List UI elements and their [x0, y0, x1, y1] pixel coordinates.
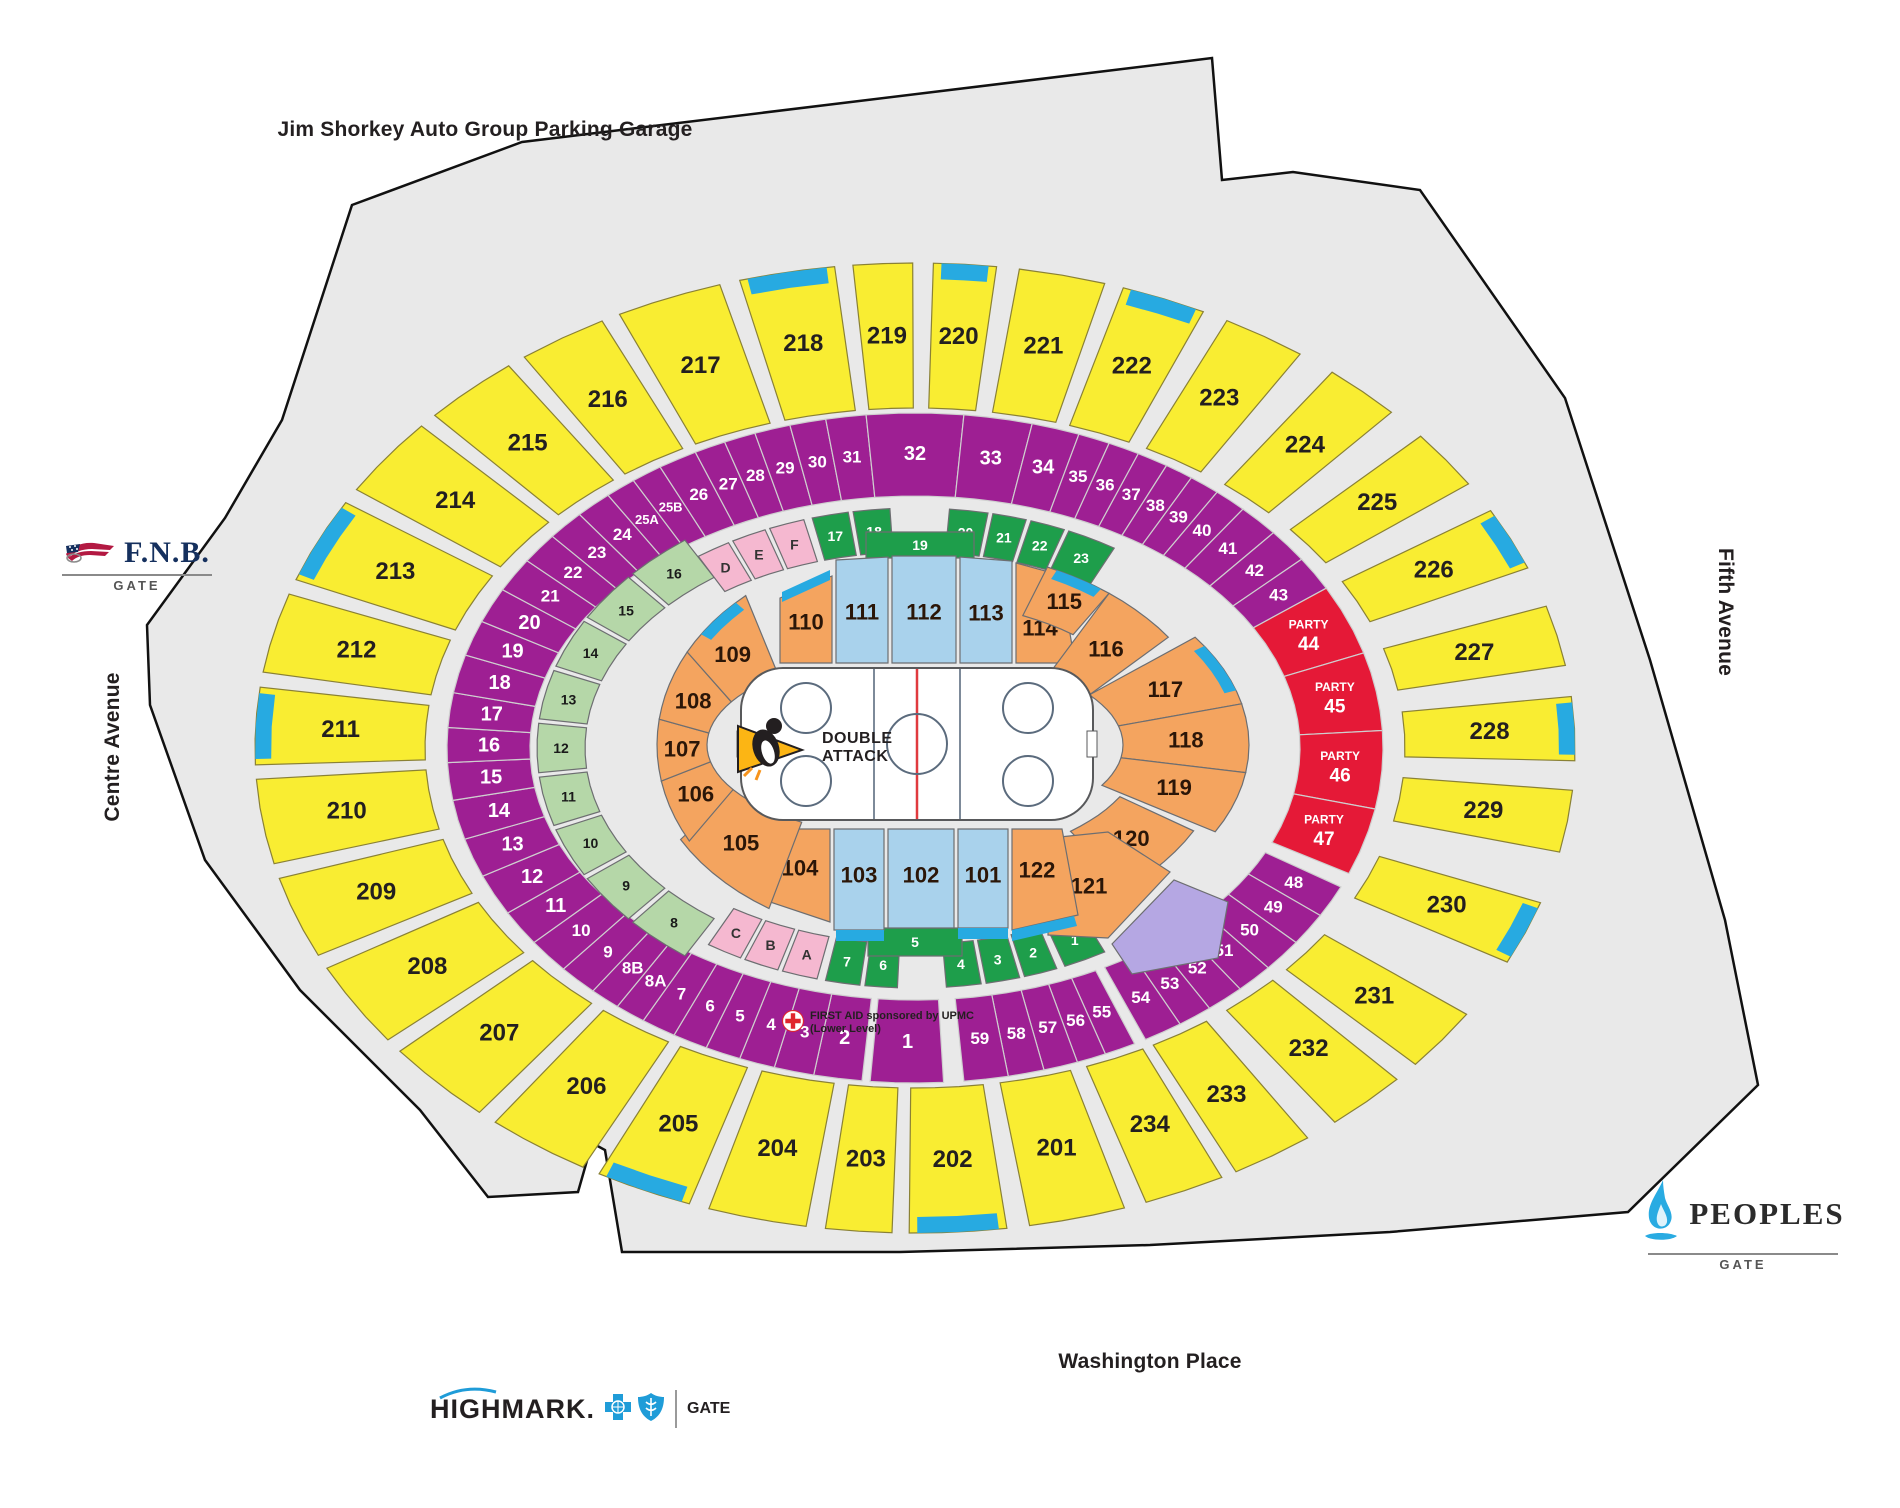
- fnb-rule: [62, 574, 212, 576]
- rink-promo-text: DOUBLE ATTACK: [822, 730, 893, 766]
- section-110-label: 110: [788, 610, 824, 635]
- section-42-label: 42: [1245, 561, 1264, 580]
- section-20-label: 20: [518, 612, 540, 634]
- bluecross-icon: [603, 1392, 633, 1427]
- section-party-44-word-label: PARTY: [1289, 617, 1329, 631]
- section-31-label: 31: [843, 448, 862, 467]
- section-party-46-word-label: PARTY: [1320, 749, 1360, 763]
- section-premium-bottom-4-label: 4: [957, 956, 965, 972]
- section-30-label: 30: [808, 452, 827, 471]
- highmark-swoosh-icon: [438, 1382, 498, 1402]
- section-118-label: 118: [1168, 727, 1204, 752]
- section-23-label: 23: [587, 543, 606, 562]
- parking-garage-label: Jim Shorkey Auto Group Parking Garage: [250, 118, 720, 142]
- section-224-label: 224: [1285, 431, 1326, 458]
- section-29-label: 29: [776, 458, 795, 477]
- section-terrace-9-label: 9: [622, 878, 630, 894]
- section-121-label: 121: [1071, 874, 1108, 899]
- section-28-label: 28: [746, 466, 765, 485]
- section-38-label: 38: [1146, 496, 1165, 515]
- section-6-label: 6: [705, 996, 714, 1015]
- goal-right: [1087, 731, 1097, 757]
- section-53-label: 53: [1160, 974, 1179, 993]
- section-7-label: 7: [677, 984, 686, 1003]
- section-terrace-16-label: 16: [666, 566, 682, 582]
- section-terrace-12-label: 12: [553, 740, 569, 756]
- section-226-label: 226: [1414, 557, 1454, 584]
- penguins-logo-head: [766, 718, 782, 734]
- section-26-label: 26: [689, 485, 708, 504]
- section-49-label: 49: [1264, 898, 1283, 917]
- section-18-label: 18: [488, 672, 510, 694]
- section-25A-label: 25A: [635, 512, 659, 527]
- section-party-47-word-label: PARTY: [1304, 812, 1344, 826]
- fnb-gate-word: GATE: [113, 578, 160, 593]
- blueshield-icon: [637, 1392, 665, 1427]
- section-13-label: 13: [501, 833, 523, 855]
- section-55-label: 55: [1092, 1003, 1111, 1022]
- section-58-label: 58: [1007, 1024, 1026, 1043]
- section-39-label: 39: [1169, 507, 1188, 526]
- section-108-label: 108: [675, 688, 712, 713]
- section-premium-bottom-6-label: 6: [879, 957, 887, 973]
- street-fifth-avenue-label: Fifth Avenue: [1713, 517, 1737, 707]
- first-aid-line2: (Lower Level): [810, 1023, 881, 1035]
- section-party-45-word-label: PARTY: [1315, 680, 1355, 694]
- section-217-label: 217: [681, 352, 721, 379]
- section-12-label: 12: [521, 866, 543, 888]
- section-terrace-11-label: 11: [561, 789, 576, 805]
- section-41-label: 41: [1218, 539, 1237, 558]
- section-37-label: 37: [1122, 485, 1141, 504]
- section-14-label: 14: [488, 800, 511, 822]
- section-111-label: 111: [845, 600, 879, 625]
- section-32-label: 32: [904, 443, 926, 465]
- section-113-label: 113: [968, 601, 1004, 626]
- highmark-gate: HIGHMARK. GATE: [430, 1390, 730, 1428]
- section-11-label: 11: [545, 895, 566, 917]
- section-230-label: 230: [1427, 892, 1467, 919]
- section-15-label: 15: [480, 766, 502, 788]
- section-34-label: 34: [1032, 457, 1055, 479]
- section-223-label: 223: [1199, 384, 1239, 411]
- section-party-44-label: 44: [1298, 634, 1320, 655]
- section-33-label: 33: [980, 448, 1002, 470]
- section-222-label: 222: [1112, 352, 1152, 379]
- aisle-stripe-220: [941, 263, 989, 282]
- first-aid-line1: FIRST AID sponsored by UPMC: [810, 1010, 974, 1022]
- section-213-label: 213: [375, 558, 415, 585]
- section-117-label: 117: [1148, 677, 1184, 702]
- section-116-label: 116: [1088, 636, 1124, 661]
- rink-promo-line2: ATTACK: [822, 748, 888, 765]
- highmark-divider: [675, 1390, 677, 1428]
- peoples-flame-icon: [1641, 1178, 1681, 1249]
- section-107-label: 107: [664, 736, 701, 761]
- section-premium-top-21-label: 21: [996, 530, 1012, 546]
- first-aid-cross-icon: [782, 1010, 804, 1037]
- section-103-label: 103: [841, 863, 878, 888]
- section-105-label: 105: [723, 830, 760, 855]
- section-233-label: 233: [1206, 1081, 1246, 1108]
- section-43-label: 43: [1269, 585, 1288, 604]
- section-party-46-label: 46: [1330, 766, 1351, 787]
- section-premium-top-22-label: 22: [1032, 537, 1048, 553]
- peoples-rule: [1648, 1253, 1838, 1255]
- section-48-label: 48: [1284, 873, 1303, 892]
- section-premium-bottom-3-label: 3: [994, 951, 1002, 967]
- fnb-brand-text: F.N.B.: [124, 536, 210, 570]
- section-109-label: 109: [714, 642, 751, 667]
- section-210-label: 210: [327, 797, 367, 824]
- section-112-label: 112: [906, 600, 942, 625]
- section-221-label: 221: [1023, 332, 1063, 359]
- section-terrace-14-label: 14: [583, 645, 599, 661]
- section-27-label: 27: [719, 474, 738, 493]
- section-57-label: 57: [1038, 1018, 1057, 1037]
- section-219-label: 219: [867, 322, 907, 349]
- section-204-label: 204: [757, 1135, 798, 1162]
- fnb-flag-icon: [64, 538, 116, 569]
- section-22-label: 22: [564, 563, 583, 582]
- fnb-gate: F.N.B. GATE: [62, 536, 212, 593]
- section-40-label: 40: [1193, 521, 1212, 540]
- section-premium-top-17-label: 17: [827, 528, 843, 544]
- aisle-stripe-228: [1556, 702, 1575, 754]
- section-218-label: 218: [783, 330, 823, 357]
- section-205-label: 205: [658, 1110, 698, 1137]
- section-202-label: 202: [933, 1146, 973, 1173]
- section-premium-bottom-A-label: A: [802, 946, 812, 962]
- highmark-gate-word: GATE: [687, 1400, 730, 1418]
- peoples-gate: PEOPLES GATE: [1648, 1178, 1838, 1272]
- section-102-label: 102: [903, 863, 940, 888]
- section-premium-bottom-5-label: 5: [911, 934, 919, 950]
- section-35-label: 35: [1069, 467, 1088, 486]
- section-25B-label: 25B: [659, 500, 683, 515]
- section-premium-bottom-7-label: 7: [843, 954, 851, 970]
- section-201-label: 201: [1037, 1134, 1077, 1161]
- section-24-label: 24: [613, 525, 632, 544]
- section-101-label: 101: [965, 863, 1002, 888]
- section-17-label: 17: [481, 704, 503, 726]
- section-premium-top-E-label: E: [754, 547, 763, 563]
- section-10-label: 10: [572, 921, 591, 940]
- section-229-label: 229: [1463, 797, 1503, 824]
- section-231-label: 231: [1354, 983, 1394, 1010]
- section-214-label: 214: [435, 487, 476, 514]
- section-225-label: 225: [1357, 489, 1397, 516]
- rink-promo-line1: DOUBLE: [822, 730, 893, 747]
- section-228-label: 228: [1470, 718, 1510, 745]
- section-54-label: 54: [1131, 988, 1150, 1007]
- stripe-101: [958, 928, 1008, 939]
- arena-seating-map: 2012022032042052062072082092102112122132…: [0, 0, 1900, 1508]
- section-premium-top-F-label: F: [790, 536, 799, 552]
- peoples-brand-text: PEOPLES: [1689, 1196, 1844, 1232]
- section-234-label: 234: [1130, 1111, 1171, 1138]
- first-aid-note: FIRST AID sponsored by UPMC (Lower Level…: [782, 1010, 974, 1037]
- seating-map-svg: 2012022032042052062072082092102112122132…: [0, 0, 1900, 1508]
- section-premium-bottom-2-label: 2: [1029, 944, 1037, 960]
- section-premium-bottom-B-label: B: [765, 937, 775, 953]
- section-party-47-label: 47: [1313, 829, 1334, 850]
- section-208-label: 208: [407, 953, 447, 980]
- section-9-label: 9: [603, 942, 612, 961]
- section-premium-top-19-label: 19: [912, 537, 928, 553]
- section-36-label: 36: [1096, 475, 1115, 494]
- street-centre-avenue-label: Centre Avenue: [101, 642, 125, 852]
- section-216-label: 216: [588, 386, 628, 413]
- section-211-label: 211: [321, 716, 360, 743]
- section-206-label: 206: [566, 1073, 606, 1100]
- stripe-103: [836, 930, 884, 941]
- section-207-label: 207: [479, 1019, 519, 1046]
- section-premium-top-D-label: D: [720, 559, 730, 575]
- section-5-label: 5: [735, 1007, 744, 1026]
- section-232-label: 232: [1289, 1035, 1329, 1062]
- section-19-label: 19: [501, 641, 523, 663]
- section-203-label: 203: [846, 1145, 886, 1172]
- section-115-label: 115: [1046, 589, 1082, 614]
- section-terrace-10-label: 10: [583, 835, 599, 851]
- section-premium-bottom-C-label: C: [731, 925, 741, 941]
- section-119-label: 119: [1156, 775, 1192, 800]
- section-4-label: 4: [766, 1015, 776, 1034]
- section-premium-top-23-label: 23: [1073, 550, 1089, 566]
- peoples-gate-word: GATE: [1719, 1257, 1766, 1272]
- section-106-label: 106: [677, 781, 714, 806]
- section-16-label: 16: [478, 734, 500, 756]
- section-220-label: 220: [939, 323, 979, 350]
- section-terrace-13-label: 13: [561, 691, 577, 707]
- section-227-label: 227: [1454, 639, 1494, 666]
- section-terrace-15-label: 15: [618, 602, 634, 618]
- section-8B-label: 8B: [622, 959, 644, 978]
- section-209-label: 209: [356, 879, 396, 906]
- section-50-label: 50: [1240, 921, 1259, 940]
- section-21-label: 21: [541, 587, 560, 606]
- section-122-label: 122: [1019, 858, 1056, 883]
- section-terrace-8-label: 8: [670, 914, 678, 930]
- street-washington-place-label: Washington Place: [950, 1350, 1350, 1374]
- section-party-45-label: 45: [1324, 697, 1346, 718]
- section-212-label: 212: [336, 636, 376, 663]
- section-8A-label: 8A: [645, 972, 667, 991]
- section-56-label: 56: [1066, 1011, 1085, 1030]
- section-215-label: 215: [508, 430, 548, 457]
